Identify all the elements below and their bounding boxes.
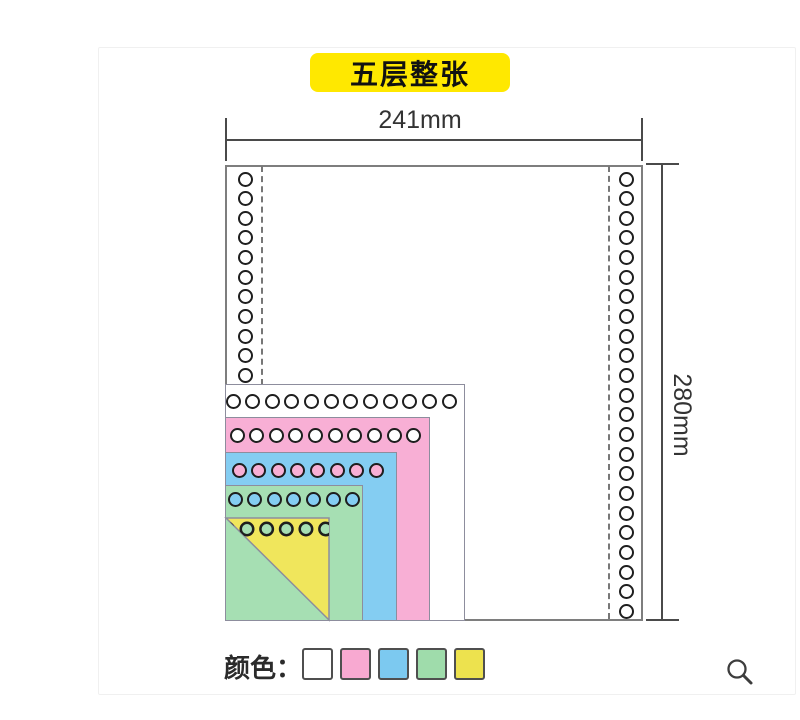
- width-dimension-label: 241mm: [340, 106, 500, 134]
- layer-3-blue-hole: [290, 463, 305, 478]
- layer-2-pink-hole: [308, 428, 323, 443]
- right-hole-column-hole: [619, 545, 634, 560]
- layer-1-white-hole: [402, 394, 417, 409]
- right-hole-column-hole: [619, 172, 634, 187]
- width-dimension-tick-right: [641, 118, 643, 161]
- layer-2-pink-hole: [249, 428, 264, 443]
- right-hole-column-hole: [619, 309, 634, 324]
- layer-4-green-hole: [286, 492, 301, 507]
- width-dimension-line: [226, 139, 642, 141]
- layer-3-blue-hole: [271, 463, 286, 478]
- left-hole-column-hole: [238, 250, 253, 265]
- left-hole-column-hole: [238, 329, 253, 344]
- layer-4-green-hole: [306, 492, 321, 507]
- layer-3-blue-hole: [232, 463, 247, 478]
- right-hole-column-hole: [619, 230, 634, 245]
- layer-1-white-hole: [343, 394, 358, 409]
- layer-1-white-hole: [245, 394, 260, 409]
- layer-5-yellow: [225, 517, 331, 622]
- layer-2-pink-hole: [230, 428, 245, 443]
- layer-2-pink-hole: [328, 428, 343, 443]
- right-hole-column-hole: [619, 270, 634, 285]
- width-dimension-tick-left: [225, 118, 227, 161]
- right-hole-column-hole: [619, 388, 634, 403]
- right-hole-column-hole: [619, 565, 634, 580]
- layer-2-pink-hole: [387, 428, 402, 443]
- color-swatch-pink: [340, 648, 371, 680]
- height-dimension-tick-top: [646, 163, 679, 165]
- right-hole-column-hole: [619, 250, 634, 265]
- left-hole-column-hole: [238, 191, 253, 206]
- right-hole-column-hole: [619, 584, 634, 599]
- right-hole-column-hole: [619, 329, 634, 344]
- product-spec-label: 五层整张: [310, 53, 510, 92]
- color-swatch-yellow: [454, 648, 485, 680]
- layer-3-blue-hole: [310, 463, 325, 478]
- layer-4-green-hole: [247, 492, 262, 507]
- right-hole-column-hole: [619, 211, 634, 226]
- layer-1-white-hole: [324, 394, 339, 409]
- layer-1-white-hole: [284, 394, 299, 409]
- left-hole-column-hole: [238, 309, 253, 324]
- color-swatch-blue: [378, 648, 409, 680]
- layer-4-green-hole: [345, 492, 360, 507]
- layer-3-blue-hole: [330, 463, 345, 478]
- left-hole-column-hole: [238, 289, 253, 304]
- color-swatch-white: [302, 648, 333, 680]
- layer-1-white-hole: [304, 394, 319, 409]
- layer-1-white-hole: [363, 394, 378, 409]
- right-hole-column-hole: [619, 604, 634, 619]
- right-hole-column-hole: [619, 427, 634, 442]
- layer-2-pink-hole: [367, 428, 382, 443]
- layer-4-green-hole: [228, 492, 243, 507]
- layer-2-pink-hole: [269, 428, 284, 443]
- layer-5-yellow-hole: [300, 523, 313, 536]
- layer-2-pink-hole: [288, 428, 303, 443]
- layer-1-white-hole: [265, 394, 280, 409]
- layer-3-blue-hole: [349, 463, 364, 478]
- right-hole-column-hole: [619, 466, 634, 481]
- layer-5-yellow-hole: [280, 523, 293, 536]
- left-hole-column-hole: [238, 230, 253, 245]
- layer-4-green-hole: [267, 492, 282, 507]
- five-layer-paper-diagram: 五层整张 241mm 280mm 颜色：: [0, 0, 800, 720]
- left-hole-column-hole: [238, 211, 253, 226]
- left-hole-column-hole: [238, 172, 253, 187]
- color-swatch-row: [302, 648, 485, 680]
- layer-5-yellow-hole: [319, 523, 332, 536]
- layer-5-yellow-hole: [260, 523, 273, 536]
- height-dimension-line: [661, 164, 663, 621]
- right-hole-column-hole: [619, 191, 634, 206]
- layer-3-blue-hole: [251, 463, 266, 478]
- right-hole-column-hole: [619, 407, 634, 422]
- right-hole-column-hole: [619, 447, 634, 462]
- left-hole-column-hole: [238, 270, 253, 285]
- layer-2-pink-hole: [406, 428, 421, 443]
- height-dimension-tick-bottom: [646, 619, 679, 621]
- layer-2-pink-hole: [347, 428, 362, 443]
- layer-1-white-hole: [442, 394, 457, 409]
- right-hole-column-hole: [619, 506, 634, 521]
- layer-1-white-hole: [226, 394, 241, 409]
- color-swatch-green: [416, 648, 447, 680]
- left-hole-column-hole: [238, 368, 253, 383]
- layer-1-white-hole: [383, 394, 398, 409]
- left-perforation-line: [261, 166, 263, 385]
- left-hole-column-hole: [238, 348, 253, 363]
- right-perforation-line: [608, 166, 610, 619]
- right-hole-column-hole: [619, 348, 634, 363]
- right-hole-column-hole: [619, 525, 634, 540]
- layer-5-yellow-hole: [241, 523, 254, 536]
- height-dimension-label: 280mm: [666, 365, 696, 465]
- legend-title: 颜色：: [224, 648, 302, 685]
- layer-4-green-hole: [326, 492, 341, 507]
- right-hole-column-hole: [619, 486, 634, 501]
- right-hole-column-hole: [619, 368, 634, 383]
- layer-1-white-hole: [422, 394, 437, 409]
- magnifier-zoom-icon[interactable]: [724, 656, 756, 688]
- layer-3-blue-hole: [369, 463, 384, 478]
- right-hole-column-hole: [619, 289, 634, 304]
